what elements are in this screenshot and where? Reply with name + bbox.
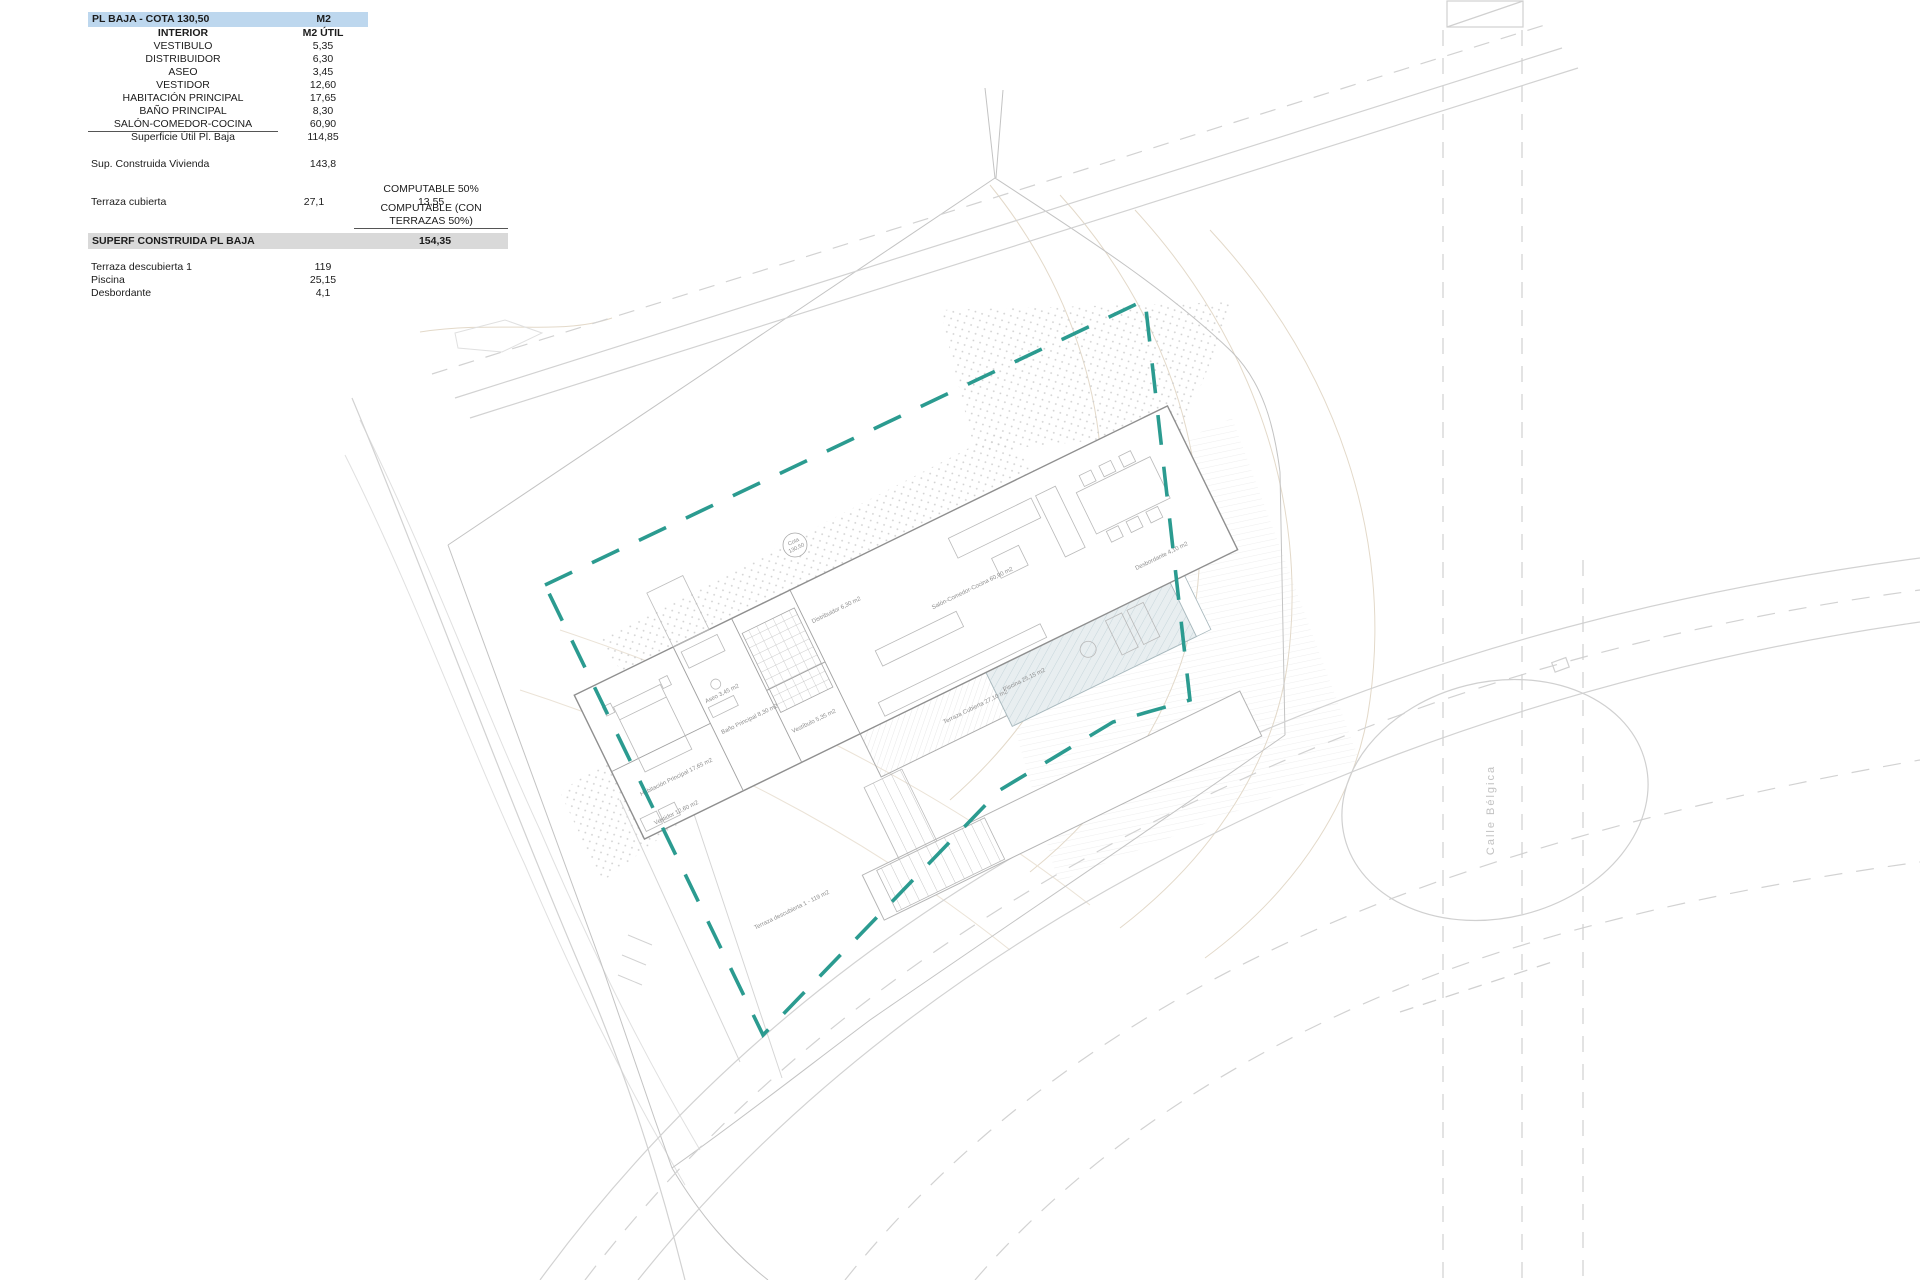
drawing-sheet: Calle Bélgica: [0, 0, 1920, 1280]
extra-row: Piscina 25,15: [88, 274, 508, 287]
subtotal-row: Superficie Útil Pl. Baja 114,85: [88, 131, 508, 144]
total-label: SUPERF CONSTRUIDA PL BAJA: [88, 235, 375, 248]
computable-row-2: COMPUTABLE (CON TERRAZAS 50%): [88, 209, 508, 222]
table-col-m2: M2: [279, 13, 368, 26]
total-row: SUPERF CONSTRUIDA PL BAJA 154,35: [88, 233, 508, 249]
table-row: DISTRIBUIDOR 6,30: [88, 53, 508, 66]
table-title: PL BAJA - COTA 130,50: [88, 13, 279, 26]
table-header: PL BAJA - COTA 130,50 M2: [88, 12, 368, 27]
total-value: 154,35: [375, 235, 495, 248]
table-row: SALÓN-COMEDOR-COCINA 60,90: [88, 118, 508, 131]
table-row: VESTIDOR 12,60: [88, 79, 508, 92]
table-row: ASEO 3,45: [88, 66, 508, 79]
area-table: PL BAJA - COTA 130,50 M2 INTERIOR M2 ÚTI…: [88, 12, 508, 300]
table-row: HABITACIÓN PRINCIPAL 17,65: [88, 92, 508, 105]
terrace-walkway: [864, 769, 937, 859]
cota-marker: Cota 130,50: [783, 533, 807, 557]
table-row: BAÑO PRINCIPAL 8,30: [88, 105, 508, 118]
computable-label-1: COMPUTABLE 50%: [354, 183, 508, 196]
table-subheader: INTERIOR M2 ÚTIL: [88, 27, 508, 40]
label-terraza-descubierta: Terraza descubierta 1 - 119 m2: [754, 889, 831, 931]
extra-row: Terraza descubierta 1 119: [88, 261, 508, 274]
built-row: Sup. Construida Vivienda 143,8: [88, 158, 508, 171]
table-row: VESTIBULO 5,35: [88, 40, 508, 53]
survey-lines: [1316, 1, 1674, 1280]
street-label: Calle Bélgica: [1485, 765, 1497, 855]
extra-row: Desbordante 4,1: [88, 287, 508, 300]
computable-row-1: COMPUTABLE 50%: [88, 183, 508, 196]
computable-label-2: COMPUTABLE (CON TERRAZAS 50%): [354, 202, 508, 229]
